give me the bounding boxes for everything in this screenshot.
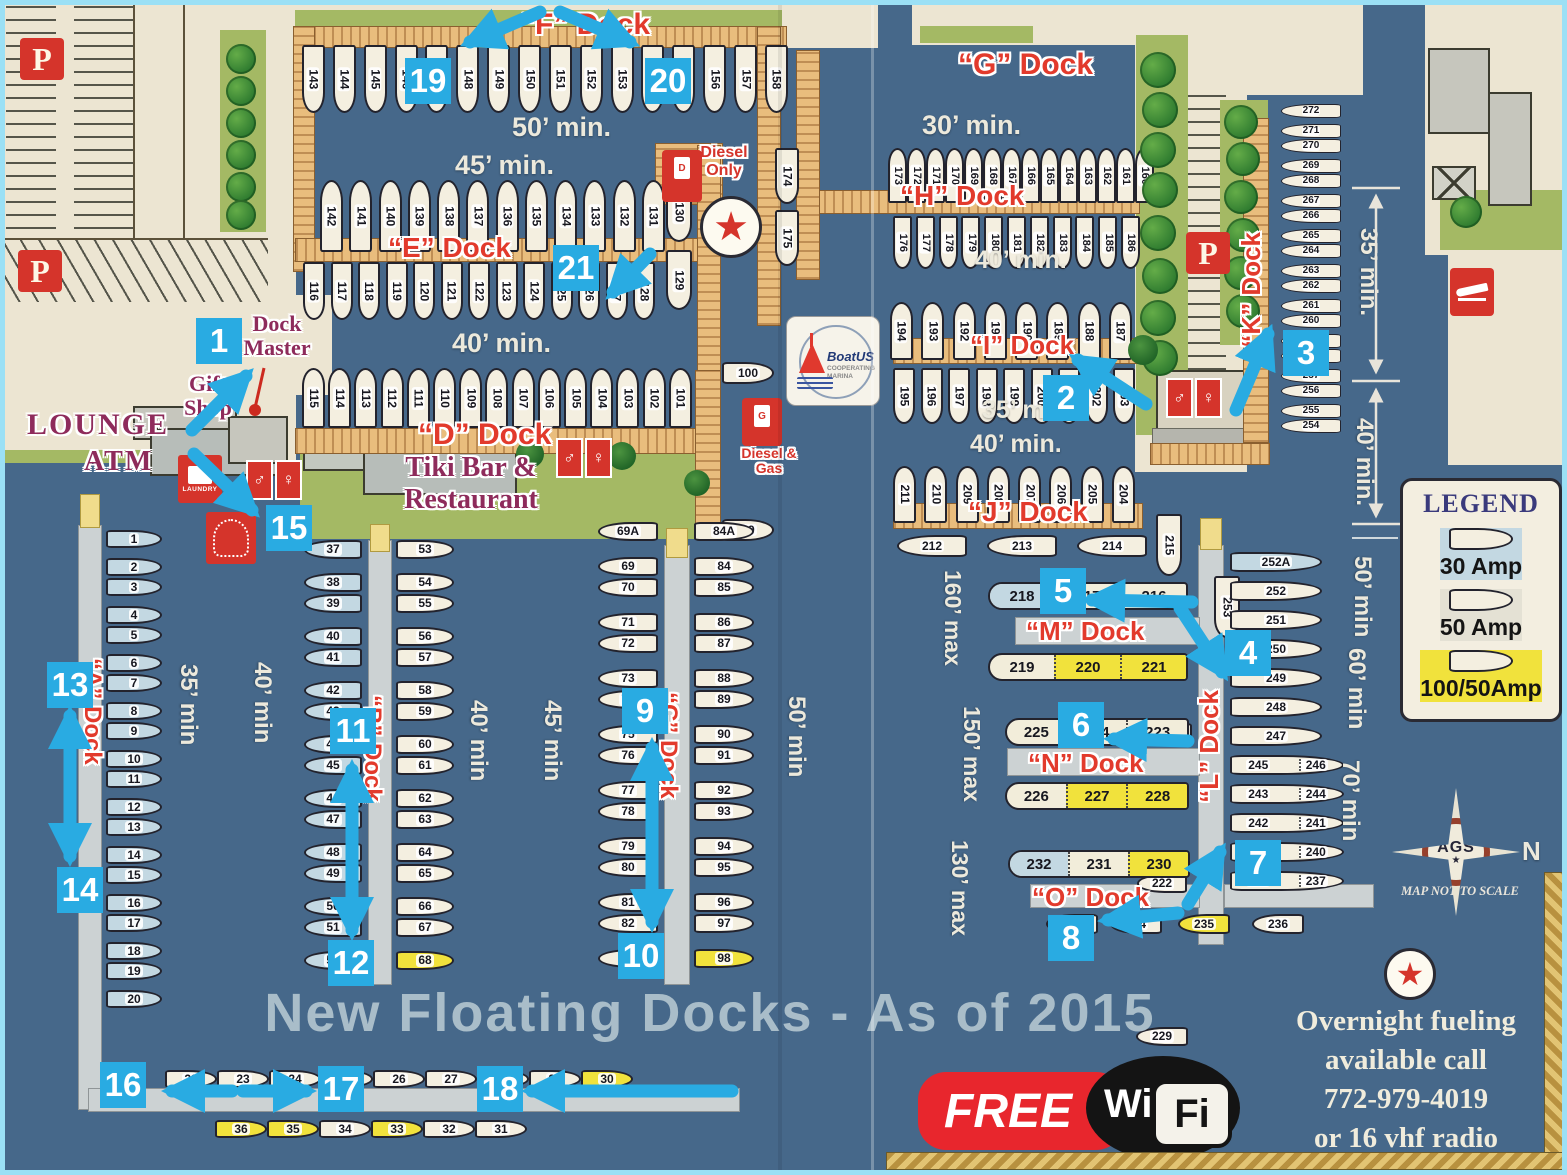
- slip-segment: 225: [1007, 720, 1066, 744]
- slip-boat: 162: [1097, 148, 1116, 203]
- slip-boat: 163: [1078, 148, 1097, 203]
- slip-boat: 101: [669, 368, 692, 428]
- annotation-marker: 5: [1040, 568, 1086, 614]
- dockmaster-building: [228, 416, 288, 464]
- slip-boat: 113: [354, 368, 377, 428]
- slip-boat: 177: [916, 216, 935, 269]
- slip-boat: 5: [106, 626, 162, 644]
- slip-segment: 226: [1007, 784, 1066, 808]
- slip-boat: 87: [694, 634, 754, 653]
- slip-boat: 119: [386, 262, 408, 320]
- l-min-50: 50’ min: [1350, 556, 1374, 637]
- tree-icon: [1140, 52, 1176, 88]
- slip-boat: 3: [106, 578, 162, 596]
- f-min-50: 50’ min.: [512, 112, 611, 143]
- o-dock-label: “O” Dock: [1032, 882, 1149, 913]
- l-dock-label: “L” Dock: [1196, 690, 1222, 803]
- slip-boat: 63: [396, 810, 454, 829]
- slip-boat: 150: [518, 45, 541, 113]
- slip-boat: 7: [106, 674, 162, 692]
- boatus-waves: [797, 377, 833, 389]
- slip-boat: 82: [598, 914, 658, 933]
- a-dock-float: [78, 525, 102, 1110]
- fueling-star-icon: ★: [1384, 948, 1436, 1000]
- slip-segment: 232: [1010, 852, 1068, 876]
- c-dock-right-slips: 84A848586878889909192939495969798: [694, 522, 754, 968]
- slip-215: 215: [1156, 514, 1182, 576]
- c-min-50: 50’ min: [784, 696, 808, 777]
- slip-boat: 129: [666, 250, 692, 310]
- tree-icon: [1140, 300, 1176, 336]
- slip-boat: 78: [598, 802, 658, 821]
- slip-boat: 115: [302, 368, 325, 428]
- j-dock-bottom-slips: 212213214: [897, 535, 1147, 557]
- a-min-35: 35’ min: [176, 664, 200, 745]
- rope-border-bottom: [886, 1152, 1564, 1170]
- slip-boat: 134: [554, 180, 577, 252]
- slip-boat: 10: [106, 750, 162, 768]
- slip-boat: 67: [396, 918, 454, 937]
- legend-item-label: 30 Amp: [1440, 553, 1522, 580]
- diesel-only-pump-icon: D: [662, 150, 702, 202]
- slip-boat: 85: [694, 578, 754, 597]
- i-min-40: 40’ min.: [970, 430, 1062, 459]
- slip-boat: 17: [106, 914, 162, 932]
- bottom-pier: [88, 1088, 740, 1112]
- slip-boat: 29: [529, 1070, 581, 1088]
- slip-boat: 194: [890, 302, 913, 360]
- slip-boat: 124: [523, 262, 545, 320]
- slip-boat: 264: [1281, 244, 1341, 258]
- slip-boat: 261: [1281, 299, 1341, 313]
- slip-boat: 73: [598, 669, 658, 688]
- slip-boat: 2: [106, 558, 162, 576]
- slip-boat: 133: [583, 180, 606, 252]
- slip-boat: 212: [897, 535, 967, 557]
- slip-boat: 9: [106, 722, 162, 740]
- b-dock-gangway: [370, 524, 390, 552]
- slip-boat: 252: [1230, 581, 1322, 601]
- slip-boat: 151: [549, 45, 572, 113]
- diesel-gas-label: Diesel & Gas: [740, 446, 798, 477]
- slip-boat: 176: [893, 216, 912, 269]
- bc-min-45: 45’ min: [540, 700, 564, 781]
- land-right-top: [1245, 0, 1363, 95]
- f-dock-label: “F” Dock: [520, 8, 650, 42]
- slip-boat: 243244: [1230, 784, 1344, 804]
- g-min-30: 30’ min.: [922, 110, 1021, 141]
- n-max-150: 150’ max: [960, 706, 983, 802]
- slip-boat: 45: [304, 756, 362, 775]
- palm-tree-icon: [226, 172, 256, 202]
- slip-boat: 235: [1178, 914, 1230, 934]
- slip-segment: 216: [1120, 584, 1186, 608]
- annotation-marker: 21: [553, 245, 599, 291]
- slip-boat: 143: [302, 45, 325, 113]
- slip-boat: 265: [1281, 229, 1341, 243]
- legend-boat-swatch: [1449, 528, 1513, 550]
- slip-segment: 228: [1126, 784, 1187, 808]
- annotation-marker: 6: [1058, 702, 1104, 748]
- travel-lift-icon: [1432, 166, 1476, 200]
- n-dock-row2: 226227228: [1005, 782, 1189, 810]
- slip-boat: 77: [598, 781, 658, 800]
- restroom-icon: ♂♀: [556, 438, 612, 478]
- slip-boat: 65: [396, 864, 454, 883]
- annotation-marker: 20: [645, 58, 691, 104]
- slip-boat: 50: [304, 897, 362, 916]
- slip-boat: 15: [106, 866, 162, 884]
- slip-boat: 40: [304, 627, 362, 646]
- slip-boat: 267: [1281, 194, 1341, 208]
- slip-boat: 105: [564, 368, 587, 428]
- restroom-icon: ♂♀: [1166, 378, 1222, 418]
- slip-boat: 46: [304, 789, 362, 808]
- slip-boat: 260: [1281, 314, 1341, 328]
- slip-boat: 14: [106, 846, 162, 864]
- c-dock-gangway: [666, 528, 688, 558]
- slip-boat: 104: [590, 368, 613, 428]
- slip-boat: 269: [1281, 159, 1341, 173]
- slip-segment: 230: [1128, 852, 1188, 876]
- slip-boat: 24: [269, 1070, 321, 1088]
- slip-boat: 195: [893, 368, 915, 424]
- slip-boat: 262: [1281, 279, 1341, 293]
- compass-star: AGS ★: [1392, 788, 1520, 916]
- green-g: [920, 26, 1033, 43]
- k-dock-pier-2: [1150, 443, 1270, 465]
- compass-rose: AGS ★: [1392, 788, 1520, 916]
- shower-icon: [206, 512, 256, 564]
- annotation-marker: 3: [1283, 330, 1329, 376]
- h-dock-label: “H” Dock: [900, 180, 1024, 212]
- legend-items: 30 Amp 50 Amp 100/50Amp: [1420, 519, 1541, 702]
- boatus-subtitle: COOPERATINGMARINA: [827, 365, 875, 381]
- slip-boat: 1: [106, 530, 162, 548]
- slip-boat: 86: [694, 613, 754, 632]
- slip-boat: 120: [413, 262, 435, 320]
- legend-item: 30 Amp: [1440, 528, 1522, 580]
- slip-boat: 148: [456, 45, 479, 113]
- slip-boat: 114: [328, 368, 351, 428]
- annotation-marker: 8: [1048, 915, 1094, 961]
- e-dock-lower-slips: 116117118119120121122123124125126127128: [303, 262, 655, 320]
- slip-boat: 96: [694, 893, 754, 912]
- compass-ring: AGS ★: [1422, 818, 1490, 886]
- annotation-marker: 9: [622, 688, 668, 734]
- tree-icon: [1142, 258, 1178, 294]
- slip-boat: 66: [396, 897, 454, 916]
- h-min-40: 40’ min.: [975, 246, 1067, 275]
- tiki-bar-label: Tiki Bar & Restaurant: [366, 452, 576, 516]
- slip-boat: 58: [396, 681, 454, 700]
- slip-boat: 48: [304, 843, 362, 862]
- slip-boat: 132: [613, 180, 636, 252]
- slip-boat: 184: [1075, 216, 1094, 269]
- slip-boat: 55: [396, 594, 454, 613]
- slip-boat: 165: [1040, 148, 1059, 203]
- slip-boat: 42: [304, 681, 362, 700]
- slip-boat: 92: [694, 781, 754, 800]
- fuel-star-icon: ★: [700, 196, 762, 258]
- slip-boat: 118: [358, 262, 380, 320]
- slip-boat: 156: [703, 45, 726, 113]
- slip-boat: 84A: [694, 522, 754, 541]
- o-dock-row1: 232231230: [1008, 850, 1190, 878]
- bush-icon: [1128, 335, 1158, 365]
- laundry-icon: LAUNDRY: [178, 455, 222, 503]
- f-min-45: 45’ min.: [455, 150, 554, 181]
- slip-boat: 266: [1281, 209, 1341, 223]
- wifi-wi: Wi: [1104, 1082, 1153, 1127]
- slip-boat: 149: [487, 45, 510, 113]
- legend-boat-swatch: [1449, 650, 1513, 672]
- e-dock-label: “E” Dock: [388, 232, 511, 264]
- palm-tree-icon: [226, 44, 256, 74]
- slip-boat: 197: [948, 368, 970, 424]
- slip-boat: 88: [694, 669, 754, 688]
- k-min-35: 35’ min.: [1356, 228, 1380, 316]
- slip-boat: 112: [381, 368, 404, 428]
- slip-boat: 6: [106, 654, 162, 672]
- slip-boat: 236: [1252, 914, 1304, 934]
- annotation-marker: 4: [1225, 630, 1271, 676]
- slip-boat: 188: [1078, 302, 1101, 360]
- annotation-marker: 13: [47, 662, 93, 708]
- slip-boat: 196: [921, 368, 943, 424]
- slip-boat: 122: [468, 262, 490, 320]
- i-dock-label: “I” Dock: [970, 330, 1074, 361]
- slip-boat: 185: [1098, 216, 1117, 269]
- slip-segment: 227: [1066, 784, 1127, 808]
- lounge-label: LOUNGE: [27, 408, 169, 442]
- slip-segment: 221: [1120, 655, 1186, 679]
- legend-box: LEGEND 30 Amp 50 Amp 100/50Amp: [1400, 478, 1562, 722]
- restroom-icon: ♂♀: [246, 460, 302, 500]
- wifi-fi-icon: Fi: [1152, 1080, 1232, 1148]
- legend-item: 50 Amp: [1440, 589, 1522, 641]
- slip-boat: 157: [734, 45, 757, 113]
- m-dock-label: “M” Dock: [1026, 616, 1144, 647]
- f-dock-slips: 1431441451461471481491501511521531541551…: [302, 45, 788, 113]
- slip-boat: 127: [606, 262, 628, 320]
- palm-tree-icon: [226, 76, 256, 106]
- slip-boat: 57: [396, 648, 454, 667]
- slip-boat: 102: [643, 368, 666, 428]
- b-dock-right-slips: 53545556575859606162636465666768: [396, 540, 454, 970]
- slip-boat: 204: [1112, 466, 1135, 523]
- slip-boat: 193: [921, 302, 944, 360]
- slip-boat: 90: [694, 725, 754, 744]
- d-dock-pier-right: [695, 370, 721, 535]
- annotation-marker: 2: [1043, 375, 1089, 421]
- slip-boat: 145: [364, 45, 387, 113]
- slip-boat: 54: [396, 573, 454, 592]
- a-dock-slips: 1234567891011121314151617181920: [106, 530, 162, 1008]
- slip-boat: 13: [106, 818, 162, 836]
- annotation-marker: 18: [477, 1066, 523, 1112]
- slip-segment: 231: [1068, 852, 1128, 876]
- boatus-logo: BoatUS COOPERATINGMARINA: [786, 316, 880, 406]
- slip-boat: 11: [106, 770, 162, 788]
- slip-boat: 60: [396, 735, 454, 754]
- slip-boat: 158: [765, 45, 788, 113]
- annotation-marker: 14: [57, 867, 103, 913]
- bottom-row-in: 363534333231: [215, 1120, 525, 1138]
- palm-tree-icon: [226, 108, 256, 138]
- slip-boat: 30: [581, 1070, 633, 1088]
- slip-boat: 255: [1281, 404, 1341, 418]
- o-max-130: 130’ max: [948, 840, 971, 936]
- m-max-160: 160’ max: [941, 570, 964, 666]
- slip-boat: 161: [1116, 148, 1135, 203]
- slip-boat: 210: [924, 466, 947, 523]
- slip-boat: 214: [1077, 535, 1147, 557]
- slip-boat: 26: [373, 1070, 425, 1088]
- slip-boat: 175: [775, 210, 799, 266]
- washer-door: [188, 466, 212, 484]
- map-title: New Floating Docks - As of 2015: [195, 982, 1225, 1044]
- l-min-60: 60’ min: [1344, 648, 1368, 729]
- slip-boat: 69: [598, 557, 658, 576]
- giftshop-label: Gift Shop: [176, 372, 240, 420]
- slip-boat: 16: [106, 894, 162, 912]
- annotation-marker: 19: [405, 58, 451, 104]
- slip-boat: 33: [371, 1120, 423, 1138]
- annotation-marker: 10: [618, 933, 664, 979]
- parking-icon: P: [18, 250, 62, 292]
- m-dock-row1: 218217216: [988, 582, 1188, 610]
- slip-boat: 69A: [598, 522, 658, 541]
- annotation-marker: 16: [100, 1062, 146, 1108]
- tree-icon: [1226, 142, 1260, 176]
- marina-map: 1431441451461471481491501511521531541551…: [0, 0, 1567, 1175]
- slip-boat: 97: [694, 914, 754, 933]
- slip-boat: 98: [694, 949, 754, 968]
- d-dock-label: “D” Dock: [418, 418, 551, 452]
- compass-star-glyph: ★: [1452, 857, 1461, 865]
- d-min-40: 40’ min.: [452, 328, 551, 359]
- slip-boat: 117: [331, 262, 353, 320]
- slip-boat: 178: [939, 216, 958, 269]
- slip-boat: 59: [396, 702, 454, 721]
- slip-boat: 213: [987, 535, 1057, 557]
- road-vertical: [133, 0, 185, 245]
- boat-ramp-icon: [1450, 268, 1494, 316]
- slip-segment: 223: [1126, 720, 1187, 744]
- slip-boat: 68: [396, 951, 454, 970]
- slip-boat: 271: [1281, 124, 1341, 138]
- north-label: N: [1522, 836, 1541, 867]
- slip-boat: 27: [425, 1070, 477, 1088]
- slip-boat: 164: [1059, 148, 1078, 203]
- legend-title: LEGEND: [1423, 489, 1539, 519]
- h-dock-pier-left: [796, 50, 820, 280]
- slip-boat: 242241: [1230, 813, 1344, 833]
- bush-icon: [684, 470, 710, 496]
- slip-boat: 23: [217, 1070, 269, 1088]
- slip-boat: 8: [106, 702, 162, 720]
- tree-icon: [1224, 180, 1258, 214]
- slip-boat: 251: [1230, 610, 1322, 630]
- palm-tree-icon: [226, 200, 256, 230]
- slip-boat: 247: [1230, 726, 1322, 746]
- m-dock-row2: 219220221: [988, 653, 1188, 681]
- slip-boat: 34: [319, 1120, 371, 1138]
- fueling-note-line: Overnight fueling: [1256, 1002, 1556, 1041]
- slip-100: 100: [722, 362, 774, 384]
- l-dock-gangway: [1200, 518, 1222, 550]
- slip-boat: 37: [304, 540, 362, 559]
- slip-boat: 121: [441, 262, 463, 320]
- a-dock-gangway: [80, 494, 100, 528]
- slip-boat: 20: [106, 990, 162, 1008]
- slip-boat: 4: [106, 606, 162, 624]
- slip-boat: 61: [396, 756, 454, 775]
- slip-boat: 72: [598, 634, 658, 653]
- rope-border-right: [1544, 872, 1564, 1164]
- slip-boat: 41: [304, 648, 362, 667]
- ab-min-40: 40’ min: [250, 662, 274, 743]
- slip-boat: 153: [611, 45, 634, 113]
- fueling-note-line: available call: [1256, 1041, 1556, 1080]
- slip-boat: 93: [694, 802, 754, 821]
- k-min-40: 40’ min.: [1352, 418, 1376, 506]
- slip-boat: 186: [1121, 216, 1140, 269]
- tree-icon: [1224, 105, 1258, 139]
- slip-boat: 123: [496, 262, 518, 320]
- n-dock-label: “N” Dock: [1028, 748, 1144, 779]
- k-dock-label: “K” Dock: [1238, 232, 1264, 348]
- annotation-marker: 7: [1235, 840, 1281, 886]
- slip-boat: 256: [1281, 384, 1341, 398]
- slip-segment: 220: [1054, 655, 1120, 679]
- slip-boat: 135: [525, 180, 548, 252]
- slip-segment: 219: [990, 655, 1054, 679]
- slip-boat: 31: [475, 1120, 527, 1138]
- slip-boat: 144: [333, 45, 356, 113]
- b-min-40: 40’ min: [466, 700, 490, 781]
- tree-icon: [1450, 196, 1482, 228]
- slip-boat: 268: [1281, 174, 1341, 188]
- slip-boat: 203: [1113, 368, 1135, 424]
- slip-boat: 152: [580, 45, 603, 113]
- bottom-row-out: 222324252627282930: [165, 1070, 630, 1088]
- slip-boat: 248: [1230, 697, 1322, 717]
- slip-boat: 36: [215, 1120, 267, 1138]
- slip-boat: 234: [1110, 914, 1162, 934]
- slip-boat: 53: [396, 540, 454, 559]
- b-dock-left-slips: 37383940414243444546474849505152: [304, 540, 362, 970]
- slip-boat: 38: [304, 573, 362, 592]
- slip-boat: 22: [165, 1070, 217, 1088]
- legend-item-label: 100/50Amp: [1420, 675, 1541, 702]
- slip-boat: 128: [633, 262, 655, 320]
- g-dock-label: “G” Dock: [958, 48, 1093, 82]
- tree-icon: [1142, 92, 1178, 128]
- slip-boat: 32: [423, 1120, 475, 1138]
- c-dock-left-slips: 69A697071727374757677787980818283: [598, 522, 658, 968]
- slip-boat: 245246: [1230, 755, 1344, 775]
- slip-boat: 47: [304, 810, 362, 829]
- boatus-buoy: [799, 343, 825, 373]
- slip-boat: 71: [598, 613, 658, 632]
- east-building-2: [1488, 92, 1532, 206]
- slip-boat: 89: [694, 690, 754, 709]
- tree-icon: [1142, 172, 1178, 208]
- slip-boat: 95: [694, 858, 754, 877]
- slip-boat: 81: [598, 893, 658, 912]
